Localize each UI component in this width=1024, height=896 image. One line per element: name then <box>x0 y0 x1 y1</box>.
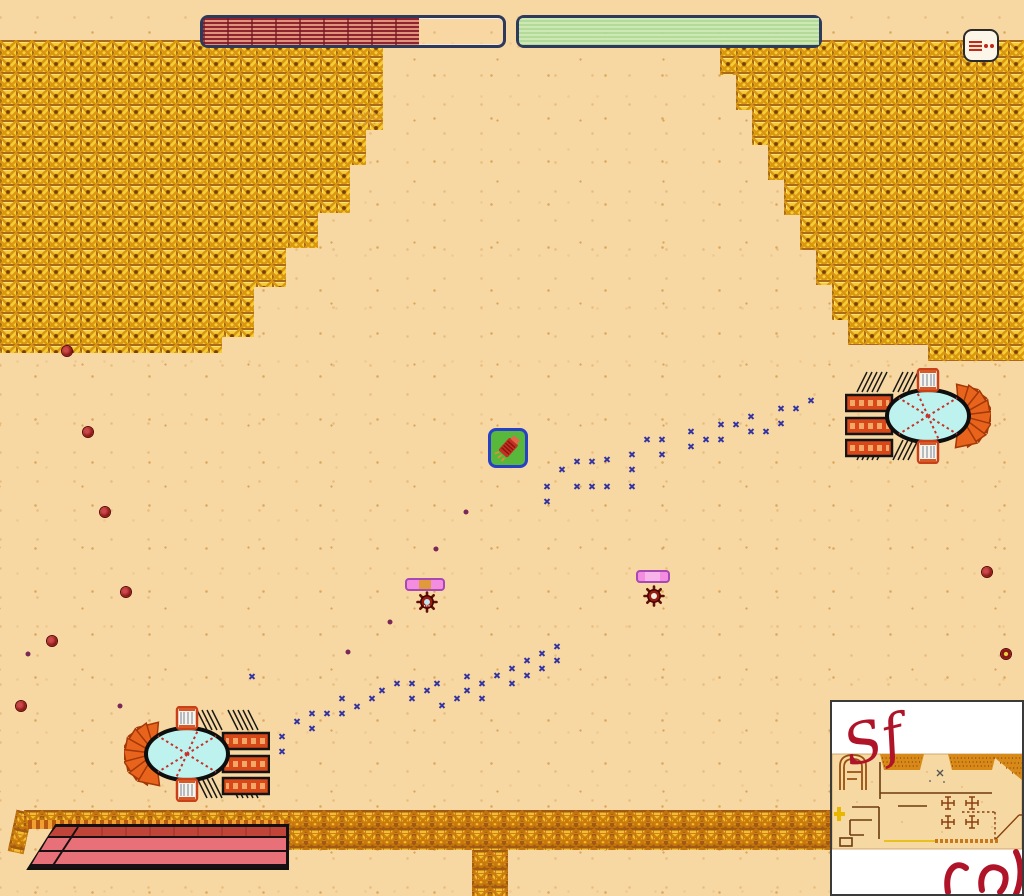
berry-dot <box>83 427 93 437</box>
footprint-mark <box>559 466 566 473</box>
footprint-mark <box>629 483 636 490</box>
footprint-mark <box>703 436 710 443</box>
footprint-mark <box>629 466 636 473</box>
footprint-mark <box>424 687 431 694</box>
lounge-chair <box>918 369 938 391</box>
lounge-chair <box>918 441 938 463</box>
lounge-chair <box>177 779 197 801</box>
enemy-health-bar-1 <box>636 570 670 583</box>
footprint-mark <box>604 483 611 490</box>
small-dot <box>388 620 393 625</box>
footprint-mark <box>524 657 531 664</box>
footprint-mark <box>688 428 695 435</box>
footprint-mark <box>659 436 666 443</box>
enemy-health-meter-fill <box>203 18 419 45</box>
footprint-mark <box>509 665 516 672</box>
red-extinguisher-icon <box>491 431 525 465</box>
dynamite-item-icon <box>969 41 982 51</box>
minimap-graphic: Sf <box>832 702 1022 894</box>
item-dot-icon <box>990 44 994 48</box>
berry-dot <box>982 567 992 577</box>
berry-dot <box>62 346 72 356</box>
footprint-mark <box>324 710 331 717</box>
footprint-mark <box>394 680 401 687</box>
pool-graphic <box>845 368 991 464</box>
pool-bottom-left <box>124 706 270 802</box>
footprint-mark <box>454 695 461 702</box>
footprint-mark <box>763 428 770 435</box>
enemy-health-bar-0 <box>405 578 445 591</box>
footprint-mark <box>778 405 785 412</box>
enemy-eye <box>424 599 430 605</box>
footprint-mark <box>574 483 581 490</box>
footprint-mark <box>434 680 441 687</box>
berry-dot <box>121 587 131 597</box>
footprint-mark <box>544 483 551 490</box>
footprint-mark <box>249 673 256 680</box>
footprint-mark <box>494 672 501 679</box>
footprint-mark <box>279 748 286 755</box>
sand-mound <box>352 106 382 128</box>
item-dot-icon <box>984 44 988 48</box>
footprint-mark <box>629 451 636 458</box>
footprint-mark <box>479 680 486 687</box>
footprint-mark <box>464 687 471 694</box>
footprint-mark <box>748 413 755 420</box>
footprint-mark <box>294 718 301 725</box>
footprint-mark <box>748 428 755 435</box>
enemy-1 <box>643 585 665 607</box>
footprint-mark <box>659 451 666 458</box>
footprint-mark <box>808 397 815 404</box>
small-dot <box>118 704 123 709</box>
berry-dot <box>100 507 110 517</box>
graffiti-strokes <box>947 852 1020 894</box>
footprint-mark <box>554 657 561 664</box>
footprint-mark <box>539 665 546 672</box>
striped-awning <box>26 824 290 870</box>
small-dot <box>346 650 351 655</box>
pickup-item <box>488 428 528 468</box>
enemy-0 <box>416 591 438 613</box>
footprint-mark <box>279 733 286 740</box>
footprint-mark <box>718 436 725 443</box>
footprint-mark <box>379 687 386 694</box>
footprint-mark <box>479 695 486 702</box>
footprint-mark <box>644 436 651 443</box>
footprint-mark <box>554 643 561 650</box>
footprint-mark <box>589 483 596 490</box>
berry-dot <box>16 701 26 711</box>
footprint-mark <box>539 650 546 657</box>
footprint-mark <box>409 680 416 687</box>
footprint-mark <box>524 672 531 679</box>
footprint-mark <box>778 420 785 427</box>
minimap-panel: Sf <box>830 700 1024 896</box>
footprint-mark <box>544 498 551 505</box>
berry-dot <box>47 636 57 646</box>
small-dot <box>26 652 31 657</box>
footprint-mark <box>589 458 596 465</box>
footprint-mark <box>339 695 346 702</box>
bottom-wall-column <box>472 850 508 896</box>
enemy-health-meter <box>200 15 506 48</box>
tiled-wall-top-right <box>720 40 1024 361</box>
tiled-wall-top-left <box>0 40 385 353</box>
footprint-mark <box>464 673 471 680</box>
footprint-mark <box>718 421 725 428</box>
small-dot <box>464 510 469 515</box>
footprint-mark <box>369 695 376 702</box>
enemy-eye <box>651 593 657 599</box>
footprint-mark <box>309 725 316 732</box>
footprint-mark <box>688 443 695 450</box>
pool-top-right <box>845 368 991 464</box>
berry-dot-ringed <box>1001 649 1011 659</box>
footprint-mark <box>604 456 611 463</box>
footprint-mark <box>309 710 316 717</box>
health-bar-segment <box>419 580 432 589</box>
pool-graphic <box>124 706 270 802</box>
footprint-mark <box>439 702 446 709</box>
footprint-mark <box>409 695 416 702</box>
footprint-mark <box>339 710 346 717</box>
footprint-mark <box>509 680 516 687</box>
inventory-slot <box>963 29 999 62</box>
footprint-mark <box>354 703 361 710</box>
game-viewport[interactable]: Sf <box>0 0 1024 896</box>
player-health-meter-fill <box>519 18 819 45</box>
lounge-chair <box>177 707 197 729</box>
player-health-meter <box>516 15 822 48</box>
bottom-wall-band <box>288 810 830 850</box>
footprint-mark <box>793 405 800 412</box>
health-bar-segment <box>645 572 660 581</box>
footprint-mark <box>574 458 581 465</box>
small-dot <box>434 547 439 552</box>
footprint-mark <box>733 421 740 428</box>
